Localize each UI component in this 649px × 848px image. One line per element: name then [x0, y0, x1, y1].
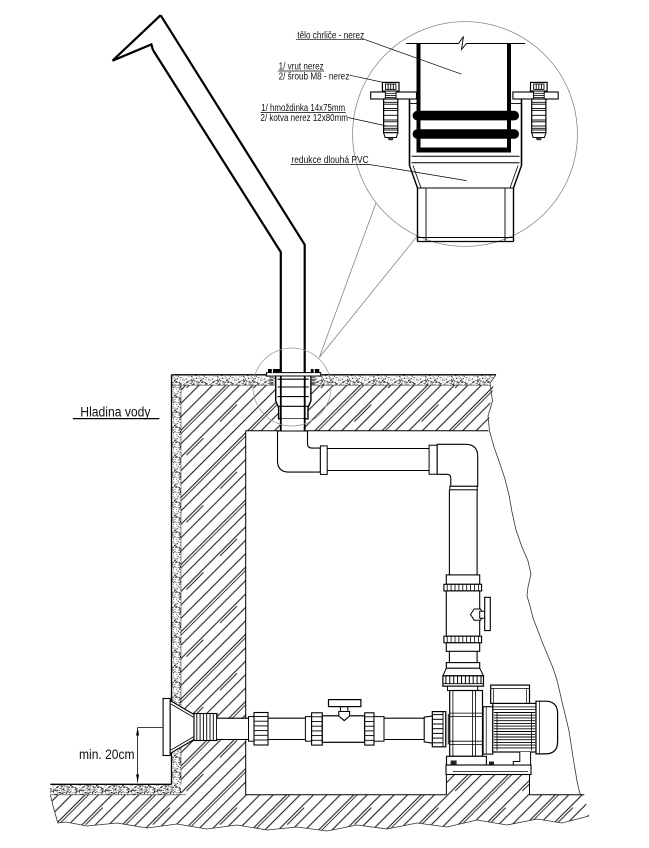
- svg-text:min. 20cm: min. 20cm: [79, 747, 135, 762]
- svg-text:Hladina vody: Hladina vody: [80, 404, 151, 420]
- svg-text:2/ šroub M8 - nerez: 2/ šroub M8 - nerez: [279, 71, 350, 82]
- svg-text:2/ kotva nerez 12x80mm: 2/ kotva nerez 12x80mm: [261, 113, 348, 124]
